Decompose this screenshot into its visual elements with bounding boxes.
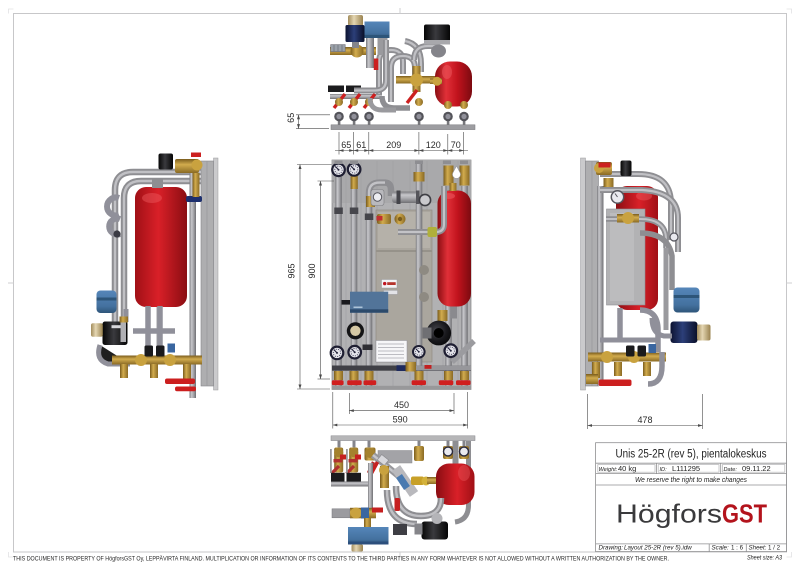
svg-text:Weight:: Weight: <box>599 467 618 473</box>
svg-text:Drawing:: Drawing: <box>599 545 624 552</box>
svg-text:61: 61 <box>356 140 366 150</box>
svg-text:09.11.22: 09.11.22 <box>742 464 771 473</box>
svg-text:We reserve the right to make c: We reserve the right to make changes <box>635 475 747 484</box>
svg-text:65: 65 <box>286 113 296 123</box>
svg-text:Scale:: Scale: <box>712 545 729 552</box>
svg-text:L111295: L111295 <box>672 464 700 473</box>
svg-text:Sheet size: A3: Sheet size: A3 <box>747 555 782 562</box>
svg-text:965: 965 <box>287 263 297 278</box>
svg-text:209: 209 <box>386 140 401 150</box>
svg-text:900: 900 <box>307 263 317 278</box>
svg-text:478: 478 <box>637 415 652 425</box>
svg-text:THIS DOCUMENT IS PROPERTY OF H: THIS DOCUMENT IS PROPERTY OF HögforsGST … <box>13 555 669 563</box>
svg-text:40 kg: 40 kg <box>618 464 636 473</box>
svg-text:Date:: Date: <box>724 467 738 473</box>
svg-text:Unis 25-2R (rev 5), pientaloke: Unis 25-2R (rev 5), pientalokeskus <box>616 449 767 461</box>
svg-text:ID:: ID: <box>660 467 668 473</box>
svg-text:Layout 25-2R (rev 5).idw: Layout 25-2R (rev 5).idw <box>624 545 692 552</box>
svg-text:GST: GST <box>722 499 767 529</box>
svg-text:1 : 6: 1 : 6 <box>731 545 744 552</box>
svg-text:65: 65 <box>341 140 351 150</box>
svg-text:1 / 2: 1 / 2 <box>768 545 781 552</box>
svg-text:Högfors: Högfors <box>616 499 722 529</box>
svg-text:70: 70 <box>451 140 461 150</box>
svg-text:120: 120 <box>426 140 441 150</box>
svg-text:590: 590 <box>393 415 408 425</box>
svg-text:Sheet:: Sheet: <box>749 545 767 552</box>
svg-text:450: 450 <box>394 400 409 410</box>
